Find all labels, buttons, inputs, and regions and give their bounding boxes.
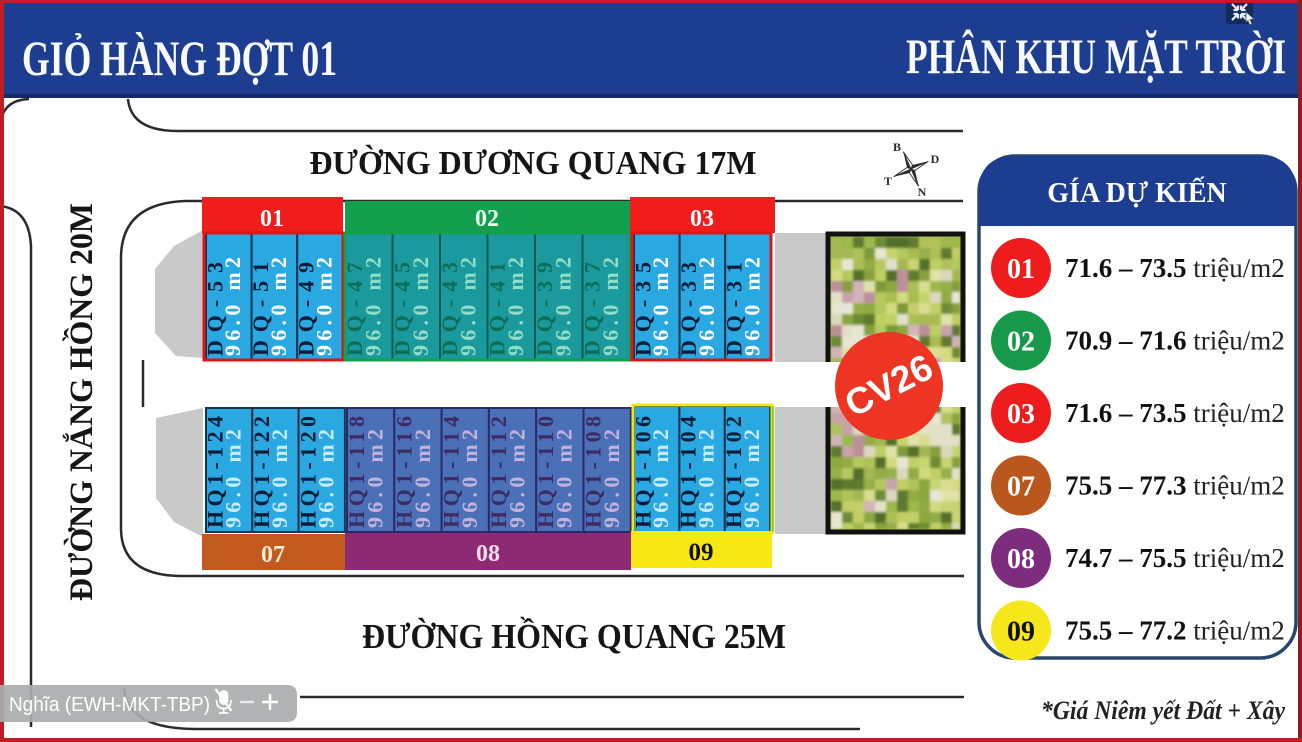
- svg-text:03: 03: [690, 206, 714, 232]
- svg-text:70.9 – 71.6 triệu/m2: 70.9 – 71.6 triệu/m2: [1065, 326, 1285, 356]
- svg-text:71.6 – 73.5 triệu/m2: 71.6 – 73.5 triệu/m2: [1065, 398, 1285, 428]
- svg-text:Nghĩa (EWH-MKT-TBP): Nghĩa (EWH-MKT-TBP): [9, 693, 210, 716]
- svg-text:N: N: [918, 185, 927, 199]
- svg-text:ĐƯỜNG DƯƠNG QUANG 17M: ĐƯỜNG DƯƠNG QUANG 17M: [310, 144, 757, 182]
- svg-text:01: 01: [260, 206, 284, 232]
- svg-text:*Giá Niêm yết Đất + Xây: *Giá Niêm yết Đất + Xây: [1041, 696, 1285, 725]
- svg-text:GIỎ HÀNG ĐỢT 01: GIỎ HÀNG ĐỢT 01: [22, 30, 337, 86]
- svg-text:PHÂN KHU MẶT TRỜI: PHÂN KHU MẶT TRỜI: [906, 28, 1286, 84]
- svg-text:74.7 – 75.5 triệu/m2: 74.7 – 75.5 triệu/m2: [1065, 543, 1285, 573]
- svg-text:71.6 – 73.5 triệu/m2: 71.6 – 73.5 triệu/m2: [1065, 253, 1285, 283]
- svg-text:75.5 – 77.3 triệu/m2: 75.5 – 77.3 triệu/m2: [1065, 471, 1285, 501]
- svg-text:D: D: [931, 152, 940, 166]
- svg-text:ĐƯỜNG NẮNG HỒNG 20M: ĐƯỜNG NẮNG HỒNG 20M: [61, 203, 100, 601]
- svg-text:07: 07: [261, 542, 285, 568]
- svg-text:B: B: [893, 140, 901, 154]
- svg-text:03: 03: [1007, 399, 1035, 430]
- svg-text:75.5 – 77.2 triệu/m2: 75.5 – 77.2 triệu/m2: [1065, 616, 1285, 646]
- svg-text:09: 09: [689, 539, 714, 566]
- svg-text:GÍA DỰ KIẾN: GÍA DỰ KIẾN: [1047, 177, 1226, 209]
- svg-text:09: 09: [1007, 617, 1035, 648]
- svg-text:08: 08: [476, 541, 500, 567]
- svg-text:02: 02: [475, 206, 499, 232]
- svg-text:ĐƯỜNG HỒNG QUANG 25M: ĐƯỜNG HỒNG QUANG 25M: [362, 615, 786, 656]
- svg-text:07: 07: [1007, 472, 1035, 503]
- svg-text:01: 01: [1007, 254, 1035, 285]
- svg-text:08: 08: [1007, 544, 1035, 575]
- svg-text:02: 02: [1007, 327, 1035, 358]
- svg-text:T: T: [884, 174, 892, 188]
